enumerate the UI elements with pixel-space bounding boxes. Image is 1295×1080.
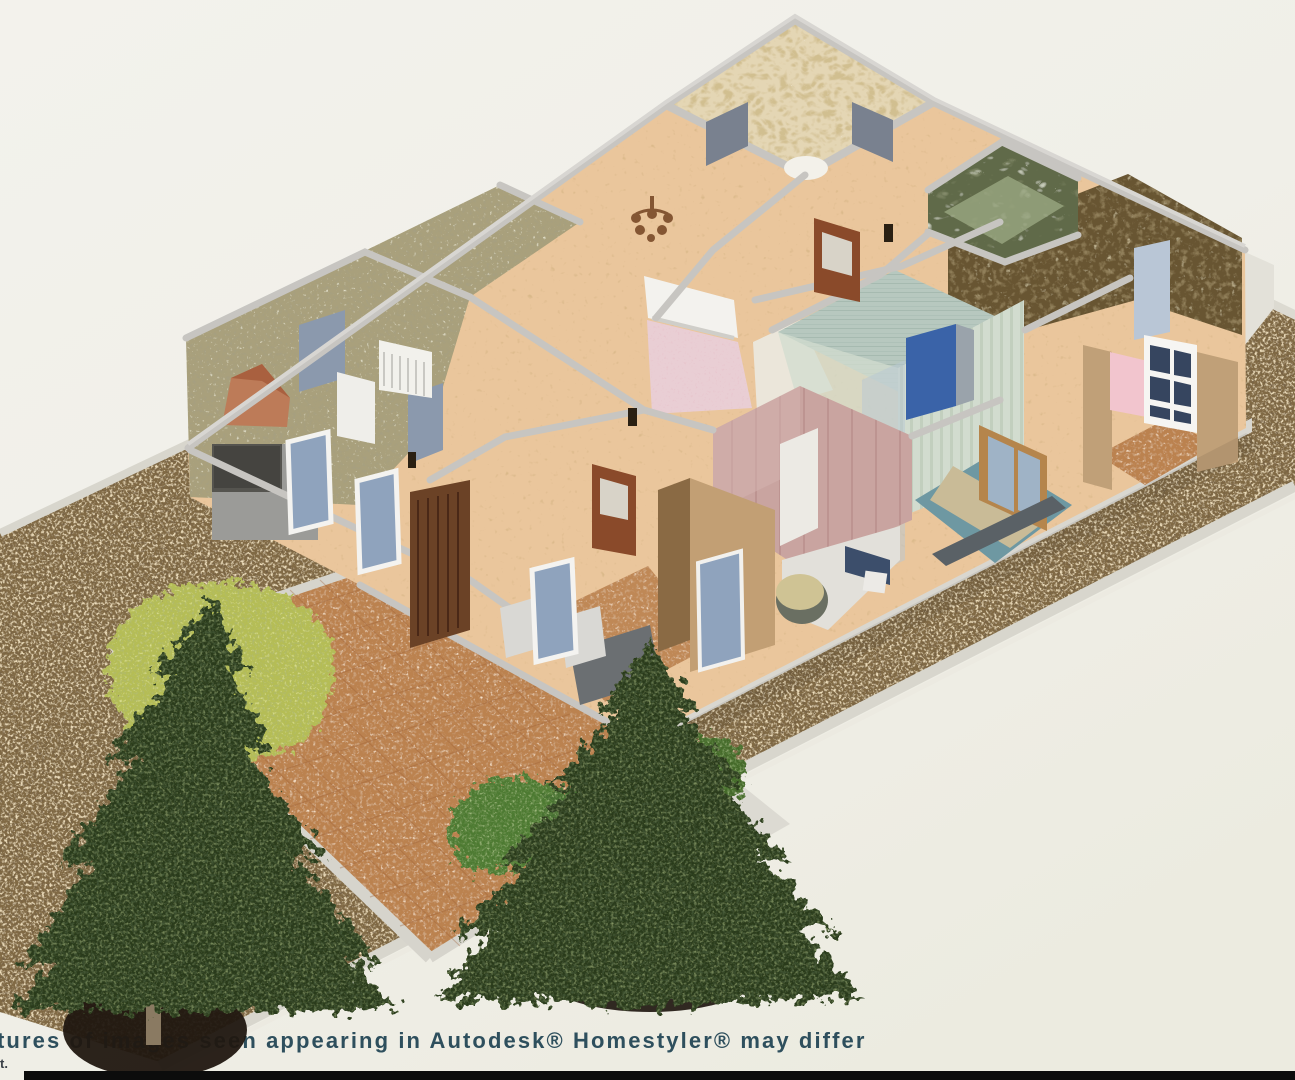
svg-text:t.: t. xyxy=(0,1056,8,1071)
